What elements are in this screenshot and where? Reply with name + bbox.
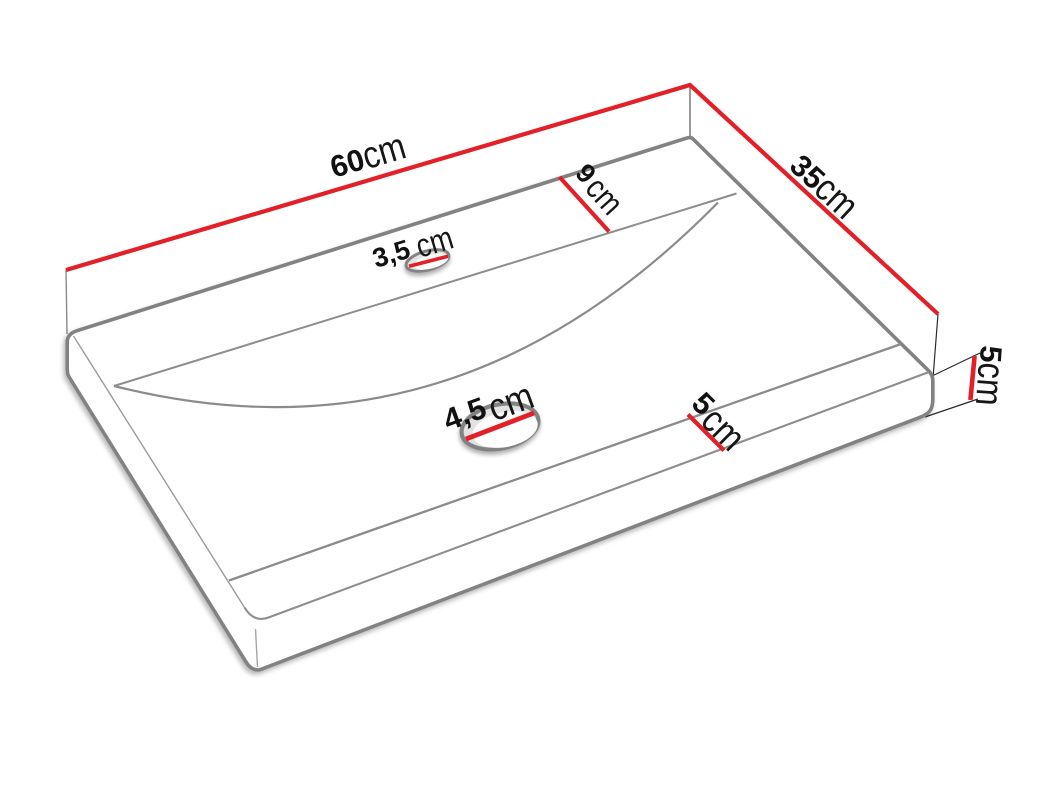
svg-text:5cm: 5cm	[967, 344, 1013, 407]
